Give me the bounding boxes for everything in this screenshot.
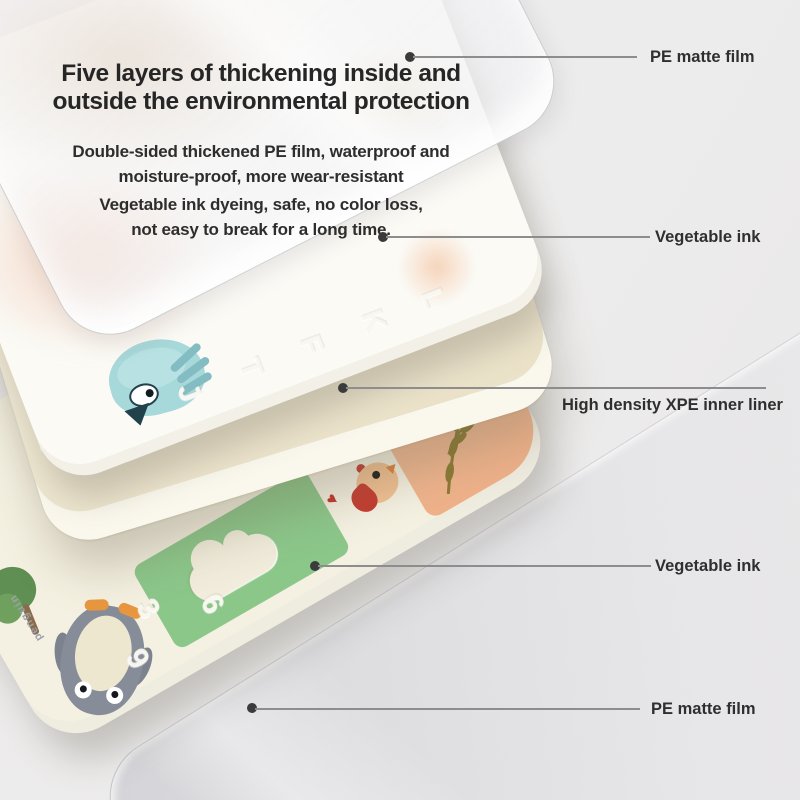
product-infographic: penguin ♥ 3 6 9 A M Y Z B C D E E I D C … (0, 0, 800, 800)
callout-label: Vegetable ink (655, 556, 760, 576)
subtitle-1-line-2: moisture-proof, more wear-resistant (22, 164, 500, 189)
subtitle-2-line-1: Vegetable ink dyeing, safe, no color los… (22, 192, 500, 217)
callout-line (346, 387, 766, 389)
title-line-1: Five layers of thickening inside and (22, 60, 500, 88)
callout-line (413, 56, 637, 58)
cloud-illustration (182, 526, 283, 608)
title-line-2: outside the environmental protection (22, 88, 500, 116)
callout-label: High density XPE inner liner (562, 395, 783, 415)
page-title: Five layers of thickening inside and out… (22, 60, 500, 116)
emboss-letter: T (233, 355, 268, 383)
callout-label: PE matte film (650, 47, 755, 67)
subtitle-1-line-1: Double-sided thickened PE film, waterpro… (22, 139, 500, 164)
blue-bird-illustration (101, 329, 213, 425)
callout-line (386, 236, 650, 238)
emboss-letter: F (294, 332, 329, 360)
green-patch (131, 468, 352, 650)
callout-line (318, 565, 651, 567)
emboss-letter: K (355, 306, 391, 337)
subtitle-2-line-2: not easy to break for a long time. (22, 217, 500, 242)
subtitle-2: Vegetable ink dyeing, safe, no color los… (22, 192, 500, 242)
subtitle-1: Double-sided thickened PE film, waterpro… (22, 139, 500, 189)
callout-line (255, 708, 640, 710)
callout-label: PE matte film (651, 699, 756, 719)
callout-label: Vegetable ink (655, 227, 760, 247)
